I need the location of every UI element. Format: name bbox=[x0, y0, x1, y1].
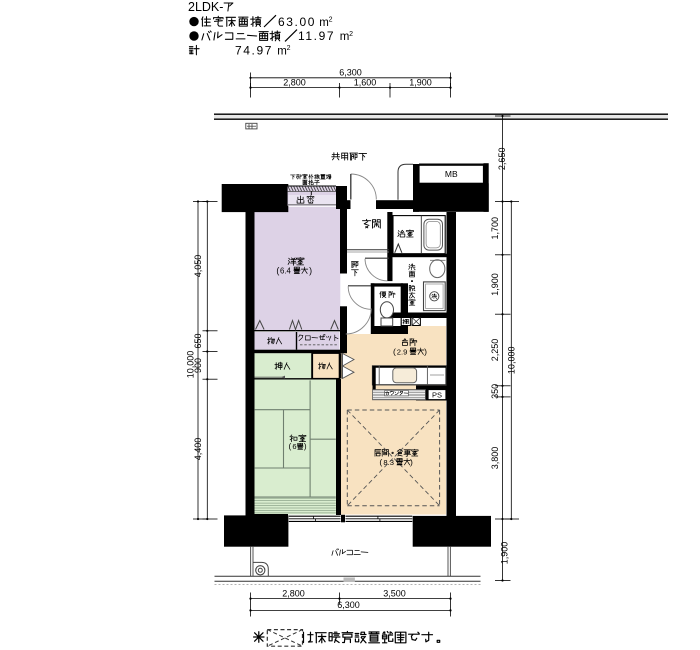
svg-text:10,000: 10,000 bbox=[185, 351, 195, 379]
svg-text:8.3: 8.3 bbox=[383, 458, 394, 467]
svg-text:): ) bbox=[424, 346, 427, 356]
svg-text:4,050: 4,050 bbox=[193, 255, 203, 278]
svg-text:MB: MB bbox=[445, 169, 458, 179]
svg-text:PS: PS bbox=[432, 390, 442, 399]
svg-text:6: 6 bbox=[292, 442, 296, 451]
svg-text:1,700: 1,700 bbox=[490, 217, 500, 240]
svg-text:350: 350 bbox=[490, 384, 500, 399]
svg-text:(: ( bbox=[379, 457, 382, 467]
svg-text:1,900: 1,900 bbox=[500, 542, 510, 565]
svg-text:(: ( bbox=[276, 266, 279, 276]
svg-text:11.97: 11.97 bbox=[298, 29, 335, 43]
svg-text:(: ( bbox=[393, 346, 396, 356]
svg-text:1,900: 1,900 bbox=[409, 77, 432, 87]
svg-text:2: 2 bbox=[287, 45, 291, 52]
svg-text:3,800: 3,800 bbox=[490, 447, 500, 470]
svg-text:1,600: 1,600 bbox=[354, 77, 377, 87]
svg-text:6.4: 6.4 bbox=[280, 267, 292, 276]
svg-text:74.97: 74.97 bbox=[235, 43, 273, 57]
svg-text:63.00: 63.00 bbox=[278, 15, 316, 29]
svg-text:2LDK-: 2LDK- bbox=[188, 0, 223, 14]
svg-text:(: ( bbox=[289, 442, 292, 451]
svg-text:): ) bbox=[309, 266, 312, 276]
svg-text:2,650: 2,650 bbox=[497, 148, 507, 171]
svg-text:6,300: 6,300 bbox=[339, 67, 362, 77]
svg-text:): ) bbox=[304, 442, 307, 451]
svg-text:2,800: 2,800 bbox=[283, 77, 306, 87]
svg-text:m: m bbox=[277, 45, 287, 57]
svg-text:2,800: 2,800 bbox=[282, 588, 305, 598]
svg-text:650: 650 bbox=[193, 333, 203, 348]
svg-text:6,300: 6,300 bbox=[337, 600, 360, 610]
svg-text:1,900: 1,900 bbox=[490, 273, 500, 296]
svg-text:4,400: 4,400 bbox=[193, 438, 203, 461]
svg-text:10,000: 10,000 bbox=[507, 347, 517, 375]
svg-text:m: m bbox=[319, 17, 329, 29]
svg-text:2.9: 2.9 bbox=[397, 347, 408, 356]
svg-text:): ) bbox=[410, 457, 413, 467]
svg-text:m: m bbox=[340, 31, 350, 43]
svg-text:2: 2 bbox=[349, 31, 353, 38]
svg-text:3,500: 3,500 bbox=[383, 588, 406, 598]
svg-text:2: 2 bbox=[329, 17, 333, 24]
svg-text:2,250: 2,250 bbox=[490, 339, 500, 362]
